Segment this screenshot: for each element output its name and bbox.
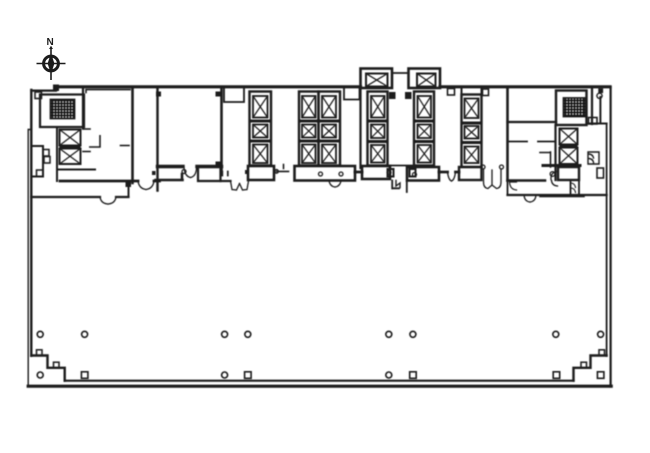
- svg-text:N: N: [47, 37, 54, 48]
